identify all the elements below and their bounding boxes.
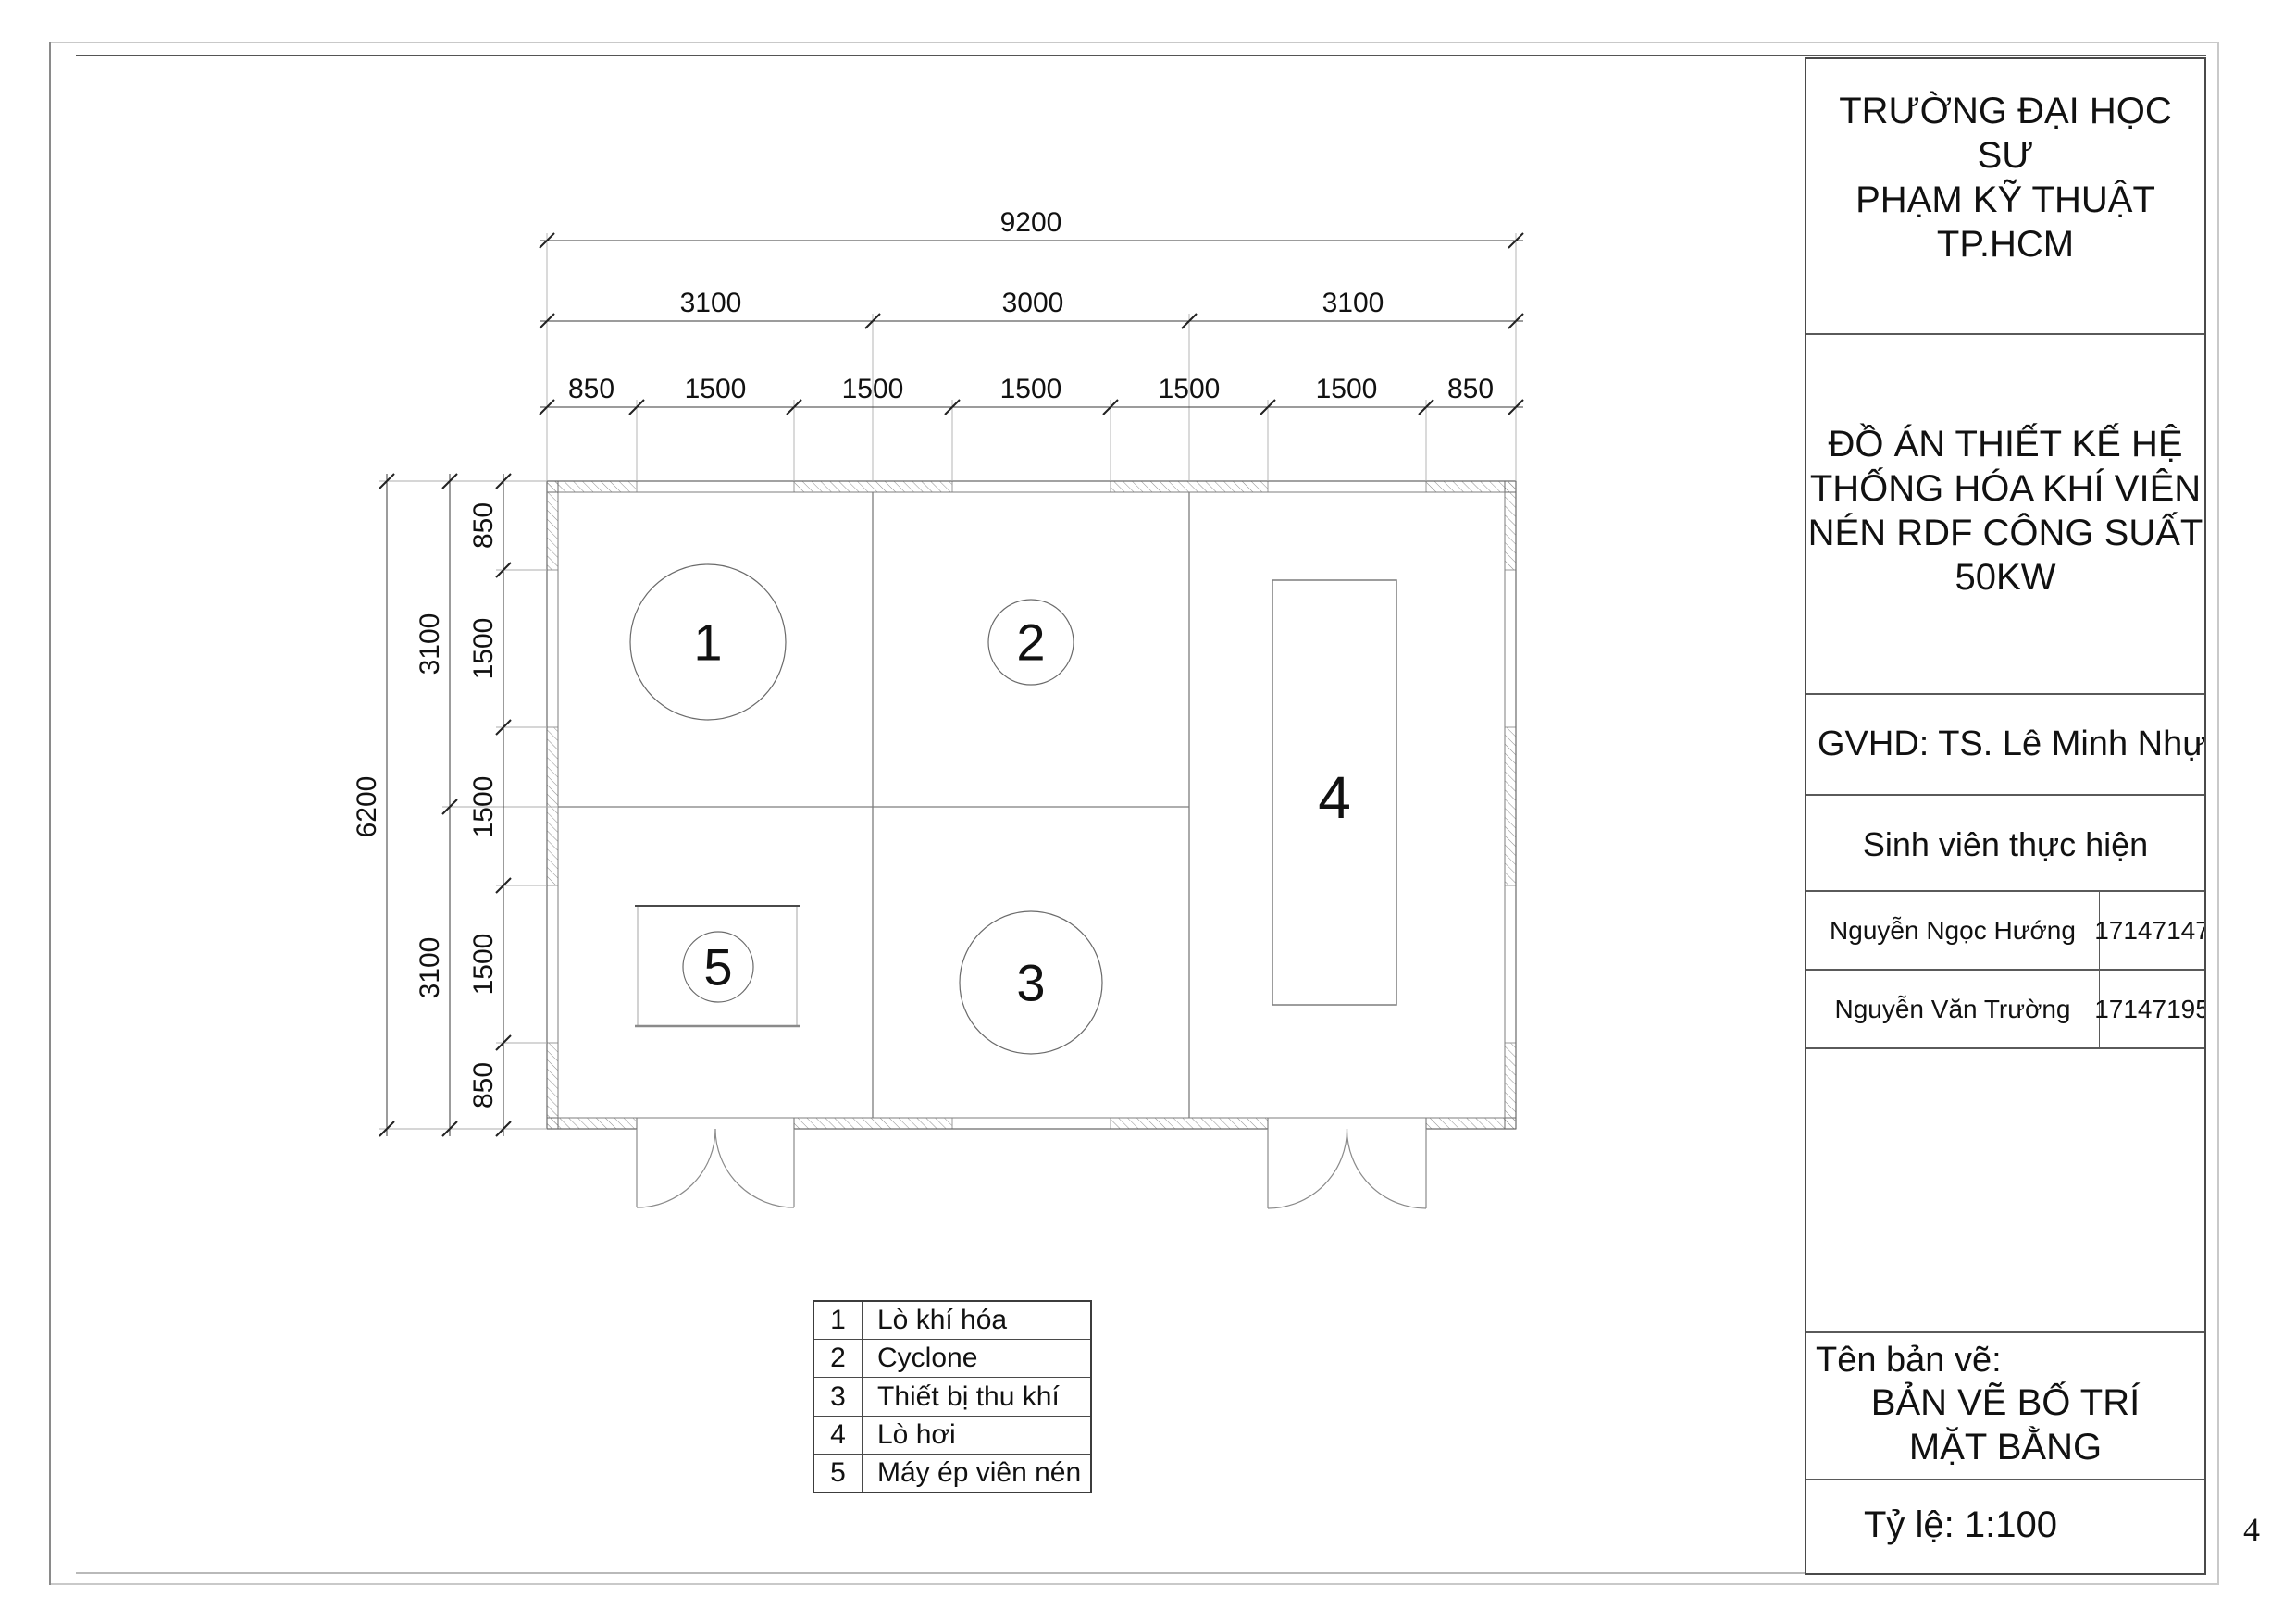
- university-line: PHẠM KỸ THUẬT: [1806, 178, 2204, 222]
- legend-label: Cyclone: [863, 1340, 1090, 1377]
- dim-height-segment: 1500: [468, 776, 499, 838]
- dim-total-width: 9200: [1000, 207, 1062, 238]
- dimension-labels-vertical: 6200 3100 3100 850 1500 1500 1500 850: [352, 502, 499, 1108]
- dim-width-span: 3000: [1002, 288, 1064, 318]
- equipment-gasifier: 1: [630, 564, 786, 720]
- legend-row: 5 Máy ép viên nén: [814, 1455, 1090, 1492]
- legend-number: 4: [814, 1417, 863, 1454]
- university-line: TRƯỜNG ĐẠI HỌC SƯ: [1806, 89, 2204, 178]
- drawing-name-label: Tên bản vẽ:: [1806, 1333, 2204, 1381]
- title-block: TRƯỜNG ĐẠI HỌC SƯ PHẠM KỸ THUẬT TP.HCM Đ…: [1805, 57, 2206, 1575]
- equipment-gas-collector: 3: [960, 911, 1102, 1054]
- page-number: 4: [2243, 1510, 2260, 1549]
- equipment-label-pellet-press: 5: [703, 938, 732, 997]
- dim-width-segment: 850: [1447, 374, 1494, 404]
- university-line: TP.HCM: [1806, 222, 2204, 266]
- student-row: Nguyễn Văn Trường 17147195: [1806, 971, 2204, 1049]
- drawing-sheet: 1 2 3 4 5: [0, 0, 2296, 1622]
- dim-width-segment: 1500: [842, 374, 904, 404]
- drawing-name-line: BẢN VẼ BỐ TRÍ: [1806, 1381, 2204, 1425]
- legend-number: 1: [814, 1302, 863, 1339]
- empty-section: [1806, 1049, 2204, 1333]
- legend-table: 1 Lò khí hóa 2 Cyclone 3 Thiết bị thu kh…: [813, 1300, 1092, 1493]
- legend-row: 2 Cyclone: [814, 1340, 1090, 1378]
- drawing-name-line: MẶT BẰNG: [1806, 1425, 2204, 1469]
- dim-width-segment: 1500: [685, 374, 747, 404]
- legend-number: 5: [814, 1455, 863, 1492]
- equipment-label-gasifier: 1: [693, 613, 722, 672]
- legend-row: 3 Thiết bị thu khí: [814, 1378, 1090, 1416]
- legend-row: 1 Lò khí hóa: [814, 1302, 1090, 1340]
- equipment-cyclone: 2: [988, 600, 1074, 685]
- legend-label: Lò khí hóa: [863, 1302, 1090, 1339]
- student-row: Nguyễn Ngọc Hướng 17147147: [1806, 892, 2204, 971]
- legend-label: Máy ép viên nén: [863, 1455, 1090, 1492]
- advisor-section: GVHD: TS. Lê Minh Nhựt: [1806, 695, 2204, 796]
- student-id: 17147147: [2099, 892, 2204, 969]
- project-title-section: ĐỒ ÁN THIẾT KẾ HỆ THỐNG HÓA KHÍ VIÊN NÉN…: [1806, 335, 2204, 695]
- student-name: Nguyễn Ngọc Hướng: [1806, 892, 2099, 969]
- dim-width-segment: 850: [568, 374, 614, 404]
- legend-number: 2: [814, 1340, 863, 1377]
- equipment-label-cyclone: 2: [1016, 613, 1045, 672]
- dim-height-segment: 1500: [468, 934, 499, 996]
- project-line: THỐNG HÓA KHÍ VIÊN: [1806, 466, 2204, 511]
- project-line: 50KW: [1806, 555, 2204, 600]
- dim-height-segment: 850: [468, 502, 499, 549]
- equipment-pellet-press: 5: [635, 906, 800, 1026]
- project-line: NÉN RDF CÔNG SUẤT: [1806, 511, 2204, 555]
- scale-section: Tỷ lệ: 1:100: [1806, 1480, 2204, 1573]
- dim-width-segment: 1500: [1159, 374, 1221, 404]
- dim-width-segment: 1500: [1000, 374, 1062, 404]
- legend-label: Lò hơi: [863, 1417, 1090, 1454]
- legend-row: 4 Lò hơi: [814, 1417, 1090, 1455]
- dim-height-segment: 1500: [468, 618, 499, 680]
- dim-height-span: 3100: [415, 613, 445, 675]
- equipment-label-gas-collector: 3: [1016, 954, 1045, 1012]
- project-line: ĐỒ ÁN THIẾT KẾ HỆ: [1806, 422, 2204, 466]
- dimension-labels-horizontal: 9200 3100 3000 3100 850 1500 1500 1500 1…: [568, 207, 1494, 404]
- legend-label: Thiết bị thu khí: [863, 1378, 1090, 1415]
- dim-width-span: 3100: [680, 288, 742, 318]
- dim-total-height: 6200: [352, 776, 382, 838]
- dim-width-span: 3100: [1322, 288, 1384, 318]
- legend-number: 3: [814, 1378, 863, 1415]
- students-header: Sinh viên thực hiện: [1806, 796, 2204, 892]
- drawing-name-section: Tên bản vẽ: BẢN VẼ BỐ TRÍ MẶT BẰNG: [1806, 1333, 2204, 1480]
- dim-height-span: 3100: [415, 937, 445, 999]
- dim-height-segment: 850: [468, 1062, 499, 1108]
- student-id: 17147195: [2099, 971, 2204, 1047]
- student-name: Nguyễn Văn Trường: [1806, 971, 2099, 1047]
- university-section: TRƯỜNG ĐẠI HỌC SƯ PHẠM KỸ THUẬT TP.HCM: [1806, 59, 2204, 335]
- equipment-label-boiler: 4: [1318, 764, 1351, 831]
- dim-width-segment: 1500: [1316, 374, 1378, 404]
- door-right: [1268, 1129, 1426, 1208]
- door-left: [637, 1129, 794, 1207]
- equipment-boiler: 4: [1272, 580, 1396, 1005]
